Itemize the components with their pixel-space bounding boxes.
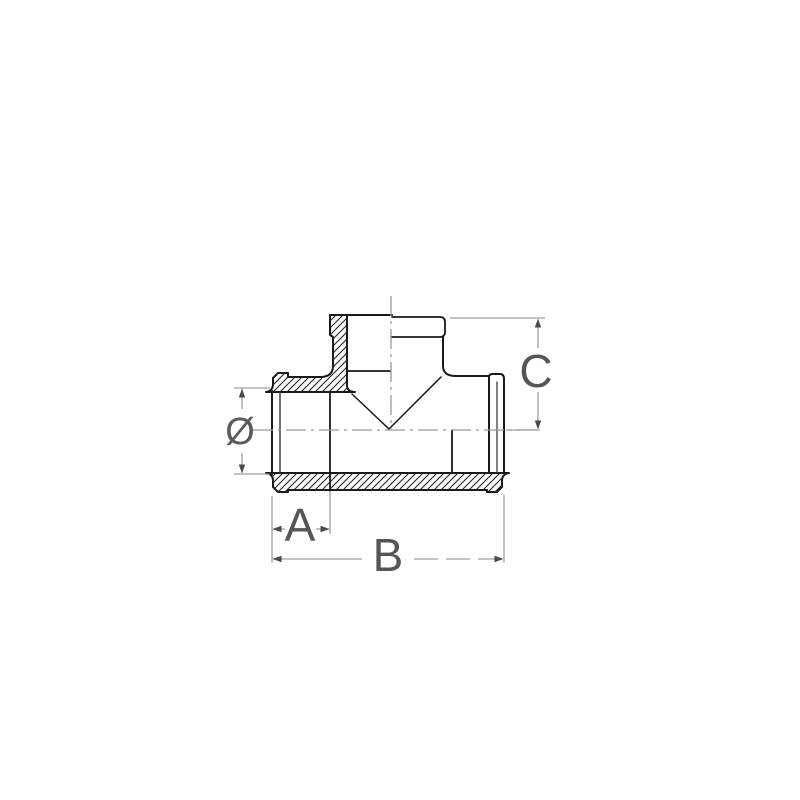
diameter-label: Ø	[225, 411, 255, 453]
c-label: C	[519, 345, 552, 397]
fitting-outline	[272, 315, 504, 491]
branch-right-band	[391, 317, 445, 337]
c-arrow-down-icon	[535, 421, 541, 430]
branch-right-wall	[443, 337, 489, 376]
b-arrow-right-icon	[495, 556, 504, 562]
a-arrow-right-icon	[321, 526, 330, 532]
c-arrow-up-icon	[535, 319, 541, 328]
technical-drawing-page: Ø A B C	[0, 0, 800, 800]
bore-intersection-left	[352, 394, 389, 429]
a-label: A	[285, 499, 316, 551]
b-label: B	[373, 529, 404, 581]
branch-left-wall-section	[266, 315, 355, 392]
section-hatching	[266, 315, 509, 492]
dimension-diameter: Ø	[225, 388, 270, 474]
tee-fitting-drawing: Ø A B C	[0, 0, 800, 800]
diameter-arrow-up-icon	[239, 389, 245, 398]
dimension-a: A	[272, 491, 330, 563]
bottom-wall-section	[266, 473, 509, 492]
b-arrow-left-icon	[273, 556, 282, 562]
bore-intersection-right	[389, 377, 441, 429]
a-arrow-left-icon	[273, 526, 282, 532]
diameter-arrow-down-icon	[239, 465, 245, 474]
